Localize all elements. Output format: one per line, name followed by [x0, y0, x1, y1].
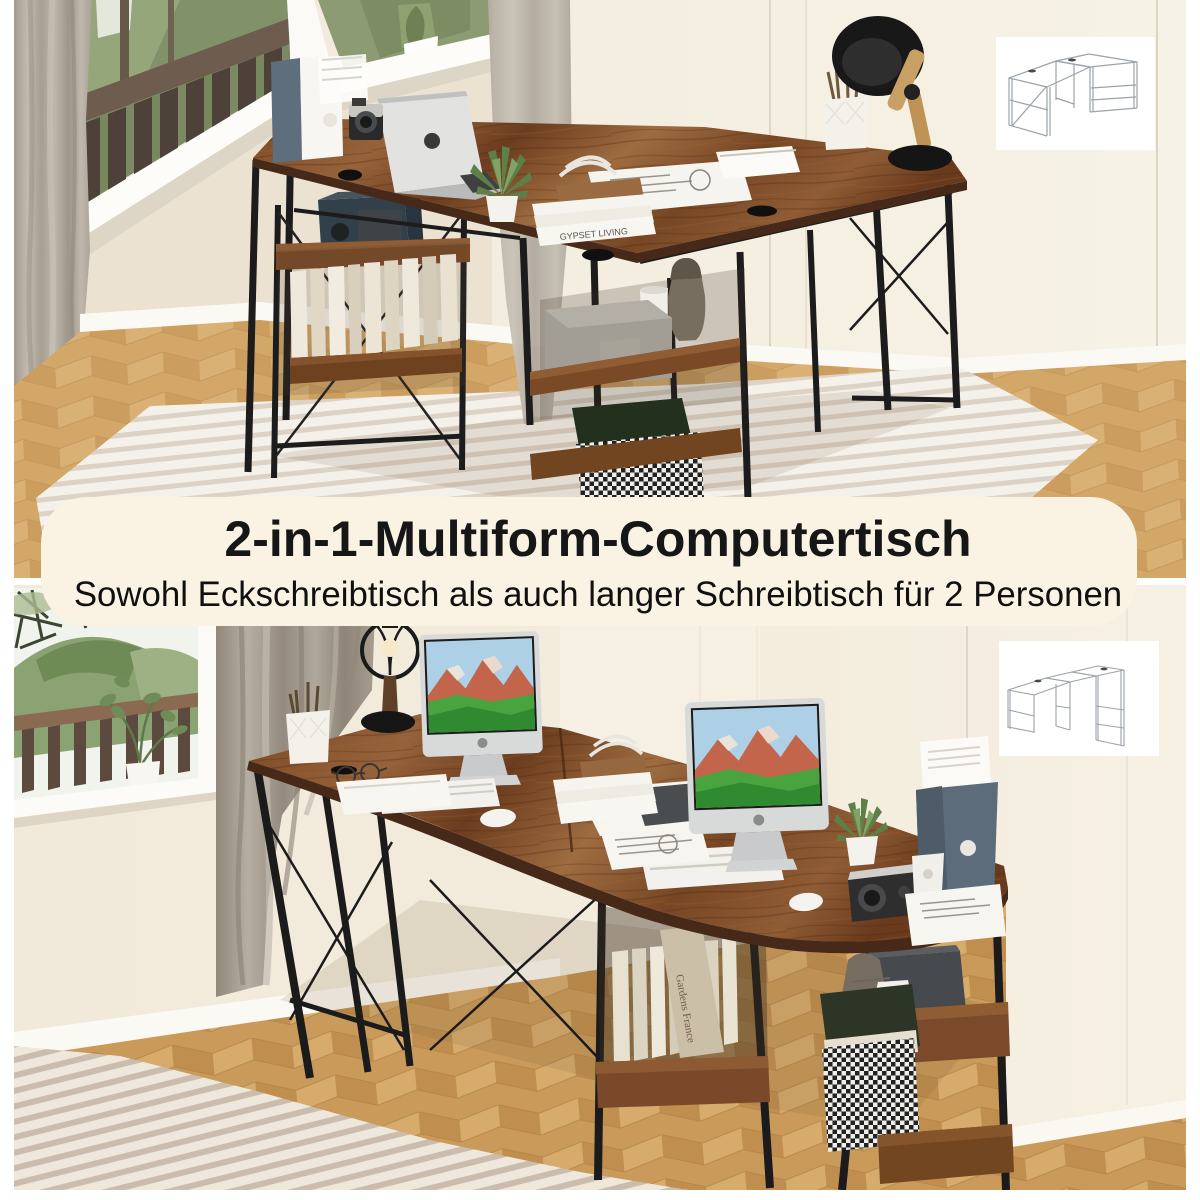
svg-text:Sowohl Eckschreibtisch als auc: Sowohl Eckschreibtisch als auch langer S…: [74, 575, 1122, 614]
svg-text:2-in-1-Multiform-Computertisch: 2-in-1-Multiform-Computertisch: [224, 511, 971, 567]
